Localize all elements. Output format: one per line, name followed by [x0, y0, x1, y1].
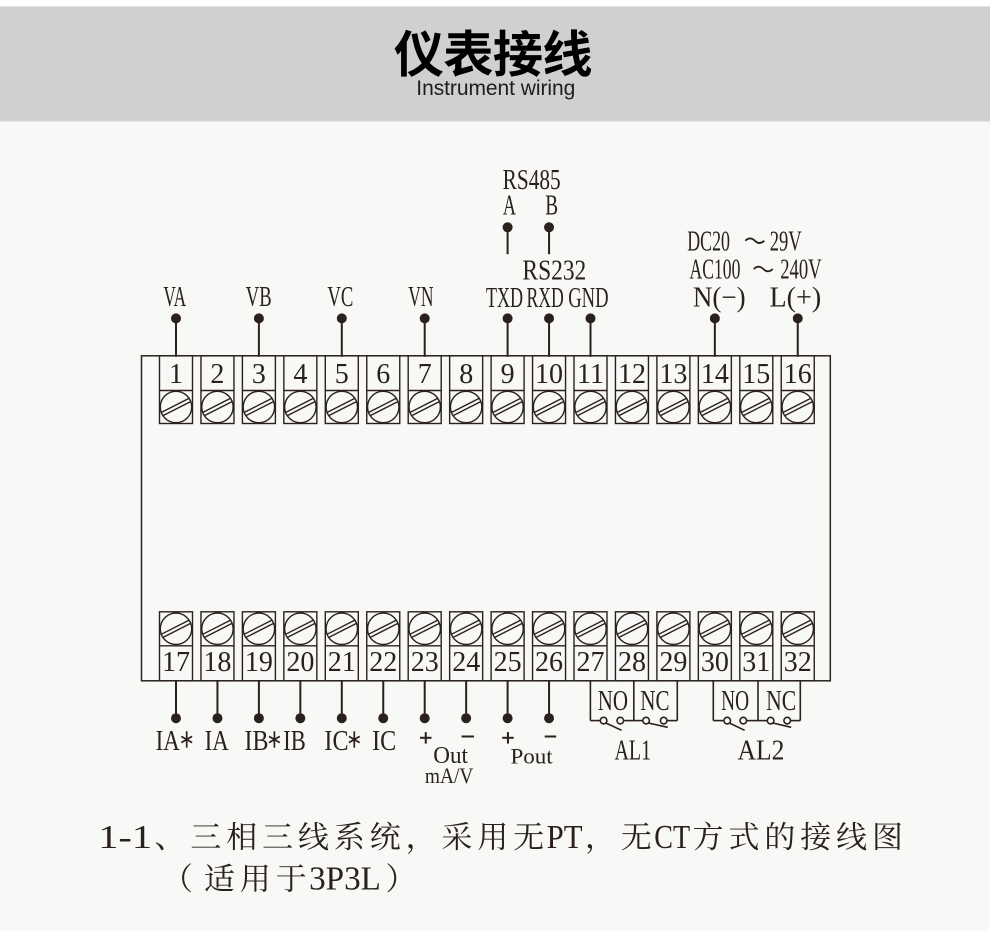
svg-text:9: 9 — [501, 359, 515, 390]
svg-text:5: 5 — [335, 359, 349, 390]
svg-text:A: A — [503, 191, 516, 222]
svg-text:VA: VA — [163, 282, 186, 313]
svg-text:IB: IB — [283, 726, 305, 757]
svg-text:8: 8 — [459, 359, 473, 390]
svg-text:27: 27 — [577, 647, 605, 678]
svg-text:32: 32 — [784, 647, 812, 678]
svg-text:19: 19 — [245, 647, 273, 678]
svg-text:IA: IA — [205, 725, 230, 757]
svg-text:29: 29 — [659, 647, 687, 678]
svg-text:AL1: AL1 — [615, 736, 652, 767]
svg-text:1: 1 — [169, 359, 183, 390]
svg-text:15: 15 — [742, 359, 770, 390]
svg-text:DC20: DC20 — [687, 227, 730, 258]
svg-text:IB: IB — [245, 725, 269, 756]
svg-text:30: 30 — [701, 647, 729, 678]
svg-text:NO: NO — [598, 686, 628, 717]
svg-text:N(−): N(−) — [693, 281, 746, 313]
svg-text:VN: VN — [408, 282, 433, 313]
svg-text:AL2: AL2 — [738, 735, 785, 766]
svg-text:1-1: 1-1 — [98, 819, 152, 856]
svg-text:6: 6 — [376, 359, 390, 390]
svg-text:mA/V: mA/V — [425, 763, 473, 789]
svg-text:IA: IA — [156, 725, 181, 757]
svg-text:16: 16 — [784, 359, 812, 390]
svg-text:3: 3 — [252, 359, 266, 390]
svg-text:18: 18 — [203, 647, 231, 678]
svg-text:10: 10 — [535, 359, 563, 390]
svg-text:29V: 29V — [770, 227, 802, 258]
svg-text:PT: PT — [547, 818, 583, 856]
svg-text:B: B — [545, 191, 558, 221]
svg-text:NC: NC — [766, 686, 796, 716]
svg-text:IC: IC — [372, 725, 396, 756]
svg-text:25: 25 — [494, 647, 522, 678]
svg-text:28: 28 — [618, 647, 646, 678]
svg-text:31: 31 — [742, 647, 770, 678]
svg-text:20: 20 — [286, 647, 314, 678]
svg-text:24: 24 — [452, 647, 480, 678]
svg-text:240V: 240V — [780, 255, 821, 286]
svg-text:23: 23 — [411, 647, 439, 678]
svg-text:L(+): L(+) — [769, 283, 821, 314]
svg-text:Pout: Pout — [510, 744, 553, 768]
svg-text:4: 4 — [293, 359, 307, 390]
svg-text:22: 22 — [369, 647, 397, 678]
svg-text:17: 17 — [162, 647, 190, 678]
svg-text:IC: IC — [324, 725, 348, 756]
svg-text:GND: GND — [568, 283, 608, 314]
svg-text:26: 26 — [535, 647, 563, 678]
svg-text:RXD: RXD — [526, 283, 563, 314]
svg-text:VB: VB — [246, 282, 272, 313]
svg-text:13: 13 — [659, 359, 687, 390]
svg-text:12: 12 — [618, 359, 646, 390]
svg-text:NC: NC — [640, 686, 669, 717]
svg-text:21: 21 — [328, 647, 356, 678]
svg-text:14: 14 — [701, 359, 729, 390]
svg-text:VC: VC — [327, 282, 353, 313]
svg-text:NO: NO — [721, 687, 749, 717]
svg-text:11: 11 — [577, 359, 604, 390]
svg-text:3P3L: 3P3L — [309, 860, 381, 897]
svg-text:Instrument wiring: Instrument wiring — [416, 77, 575, 100]
svg-text:CT: CT — [654, 817, 690, 855]
svg-text:TXD: TXD — [486, 283, 523, 314]
svg-text:7: 7 — [418, 359, 432, 390]
svg-text:2: 2 — [210, 359, 224, 390]
svg-text:RS232: RS232 — [522, 254, 586, 285]
